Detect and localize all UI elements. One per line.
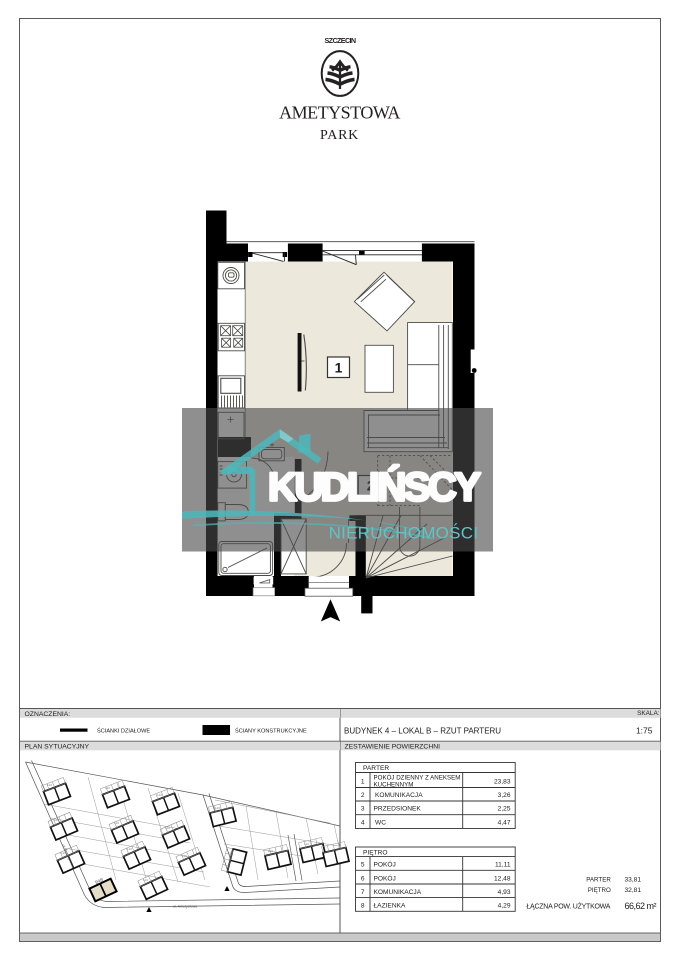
svg-text:120: 120 xyxy=(54,818,59,822)
svg-text:4,47: 4,47 xyxy=(498,820,511,827)
svg-text:120: 120 xyxy=(182,854,187,858)
svg-text:6: 6 xyxy=(361,875,365,882)
svg-text:3,26: 3,26 xyxy=(498,792,511,799)
svg-text:KOMUNIKACJA: KOMUNIKACJA xyxy=(374,889,422,896)
svg-text:SZCZECIN: SZCZECIN xyxy=(325,36,356,45)
svg-text:120: 120 xyxy=(165,826,170,830)
svg-text:8: 8 xyxy=(361,903,365,910)
svg-text:OZNACZENIA:: OZNACZENIA: xyxy=(25,711,71,718)
svg-text:120: 120 xyxy=(105,786,110,790)
svg-text:PARTER: PARTER xyxy=(363,765,389,772)
svg-text:66,62 m²: 66,62 m² xyxy=(625,901,657,911)
svg-text:2,25: 2,25 xyxy=(498,806,511,813)
svg-text:ŁAZIENKA: ŁAZIENKA xyxy=(374,903,406,910)
svg-text:23,83: 23,83 xyxy=(494,779,511,786)
svg-text:4,29: 4,29 xyxy=(498,903,511,910)
svg-text:PRZEDSIONEK: PRZEDSIONEK xyxy=(374,806,422,813)
svg-text:120: 120 xyxy=(143,878,148,882)
svg-text:PIĘTRO: PIĘTRO xyxy=(588,887,611,894)
svg-text:33,81: 33,81 xyxy=(624,877,641,884)
svg-text:POKÓJ: POKÓJ xyxy=(374,860,396,869)
svg-text:4: 4 xyxy=(361,820,365,827)
svg-text:120: 120 xyxy=(127,847,132,851)
svg-text:120: 120 xyxy=(215,806,220,810)
svg-text:PLAN SYTUACYJNY: PLAN SYTUACYJNY xyxy=(25,744,90,751)
svg-text:ZESTAWIENIE POWIERZCHNI: ZESTAWIENIE POWIERZCHNI xyxy=(345,744,441,751)
svg-text:KOMUNIKACJA: KOMUNIKACJA xyxy=(375,792,423,799)
svg-text:5: 5 xyxy=(361,862,365,869)
svg-text:PIĘTRO: PIĘTRO xyxy=(363,849,388,856)
svg-text:11,11: 11,11 xyxy=(495,862,511,869)
svg-text:SKALA:: SKALA: xyxy=(637,710,660,717)
svg-text:1:75: 1:75 xyxy=(636,726,653,736)
svg-text:BUDYNEK 4 – LOKAL B – RZUT PA: BUDYNEK 4 – LOKAL B – RZUT PARTERU xyxy=(344,727,501,736)
svg-text:KUDLIŃSCY: KUDLIŃSCY xyxy=(268,465,481,510)
svg-text:ŁĄCZNA POW. UŻYTKOWA: ŁĄCZNA POW. UŻYTKOWA xyxy=(526,902,610,911)
svg-text:1: 1 xyxy=(335,360,343,376)
svg-text:120: 120 xyxy=(157,793,162,797)
svg-text:120: 120 xyxy=(268,849,273,853)
svg-text:7: 7 xyxy=(361,889,365,896)
svg-text:AMETYSTOWA: AMETYSTOWA xyxy=(279,103,400,123)
svg-text:120: 120 xyxy=(228,851,233,855)
svg-text:120: 120 xyxy=(304,842,309,846)
svg-text:1: 1 xyxy=(361,779,365,786)
svg-text:12,48: 12,48 xyxy=(494,875,511,882)
svg-text:POKÓJ: POKÓJ xyxy=(374,873,396,882)
svg-text:WC: WC xyxy=(375,820,386,827)
svg-text:ŚCIANKI DZIAŁOWE: ŚCIANKI DZIAŁOWE xyxy=(97,726,150,734)
svg-text:ul. Ametystowa: ul. Ametystowa xyxy=(173,905,197,909)
svg-text:2: 2 xyxy=(361,792,365,799)
svg-text:ŚCIANY KONSTRUKCYJNE: ŚCIANY KONSTRUKCYJNE xyxy=(235,726,307,734)
svg-text:120: 120 xyxy=(61,851,66,855)
svg-text:32,81: 32,81 xyxy=(624,887,641,894)
svg-text:3: 3 xyxy=(361,806,365,813)
svg-text:NIERUCHOMOŚCI: NIERUCHOMOŚCI xyxy=(329,524,479,543)
svg-text:KUCHENNYM: KUCHENNYM xyxy=(374,781,414,788)
svg-text:PARK: PARK xyxy=(320,128,359,143)
svg-text:PARTER: PARTER xyxy=(586,877,611,884)
svg-text:120: 120 xyxy=(114,821,119,825)
svg-text:4,93: 4,93 xyxy=(498,889,511,896)
svg-text:120: 120 xyxy=(47,783,52,787)
